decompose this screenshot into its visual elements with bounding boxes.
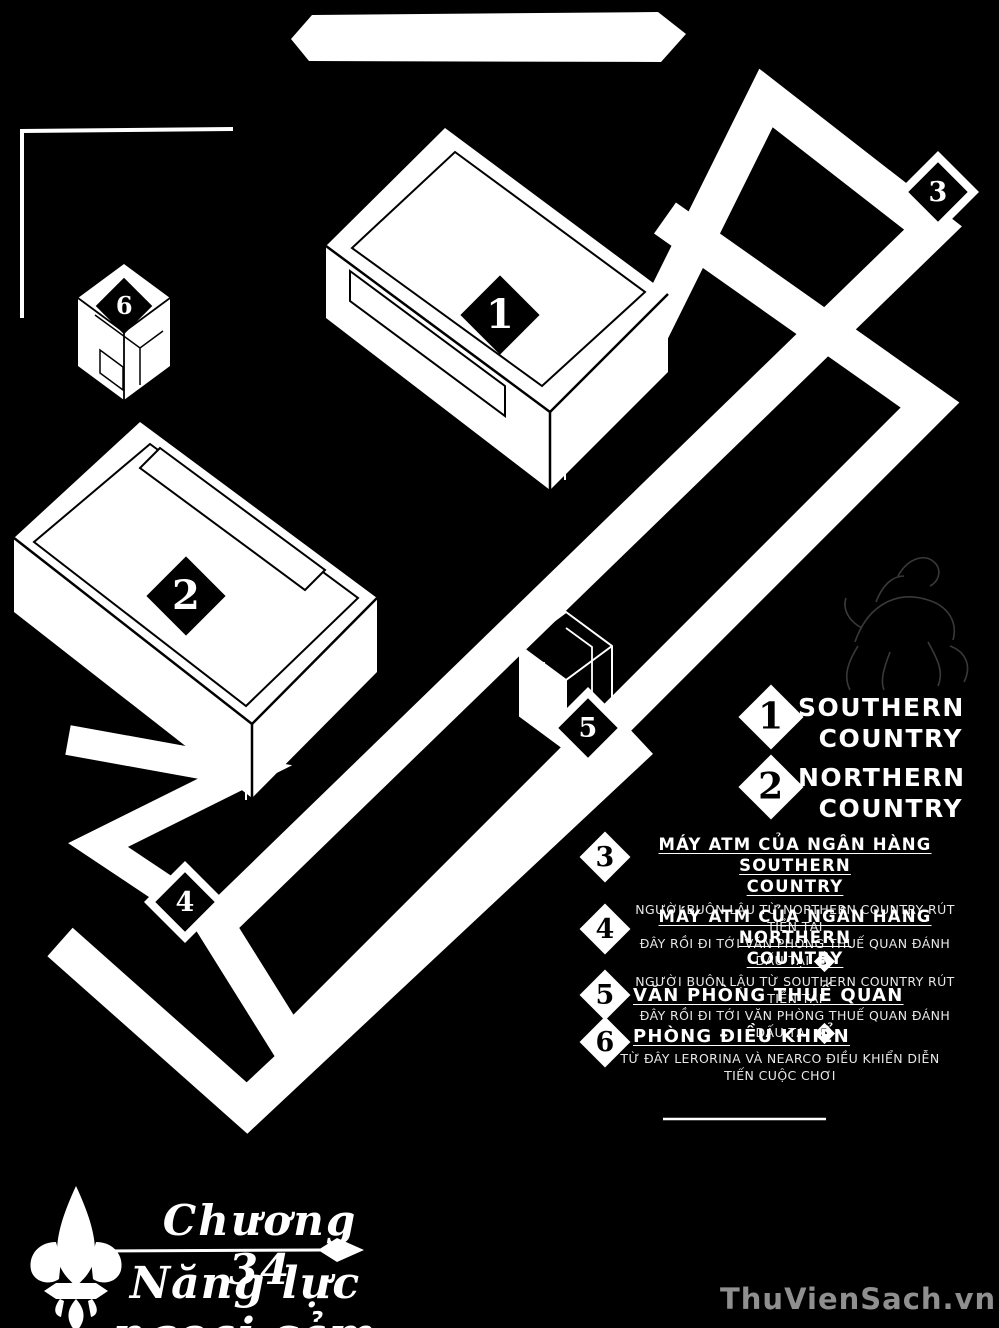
legend-item-4: MÁY ATM CỦA NGÂN HÀNG NORTHERN COUNTRY N…	[630, 906, 960, 1041]
legend-item-5: VĂN PHÒNG THUẾ QUAN	[633, 985, 904, 1006]
site-watermark: ThuVienSach.vn	[720, 1282, 975, 1316]
legend-item-6-desc: TỪ ĐÂY LERORINA VÀ NEARCO ĐIỀU KHIỂN DIỄ…	[600, 1050, 960, 1084]
legend-country-2: NORTHERN COUNTRY	[798, 762, 963, 824]
title-banner-shape	[291, 12, 686, 62]
map-artwork	[0, 0, 999, 1328]
chapter-title: Năng lực ngoại cảm	[80, 1258, 410, 1328]
horse-sketch	[845, 558, 968, 690]
legend-item-6-heading: PHÒNG ĐIỀU KHIỂN	[633, 1026, 850, 1047]
manga-map-page: 1 2 3 4 5 6 1 SOUTHERN COUNTRY 2	[0, 0, 999, 1328]
legend-country-1: SOUTHERN COUNTRY	[798, 692, 963, 754]
